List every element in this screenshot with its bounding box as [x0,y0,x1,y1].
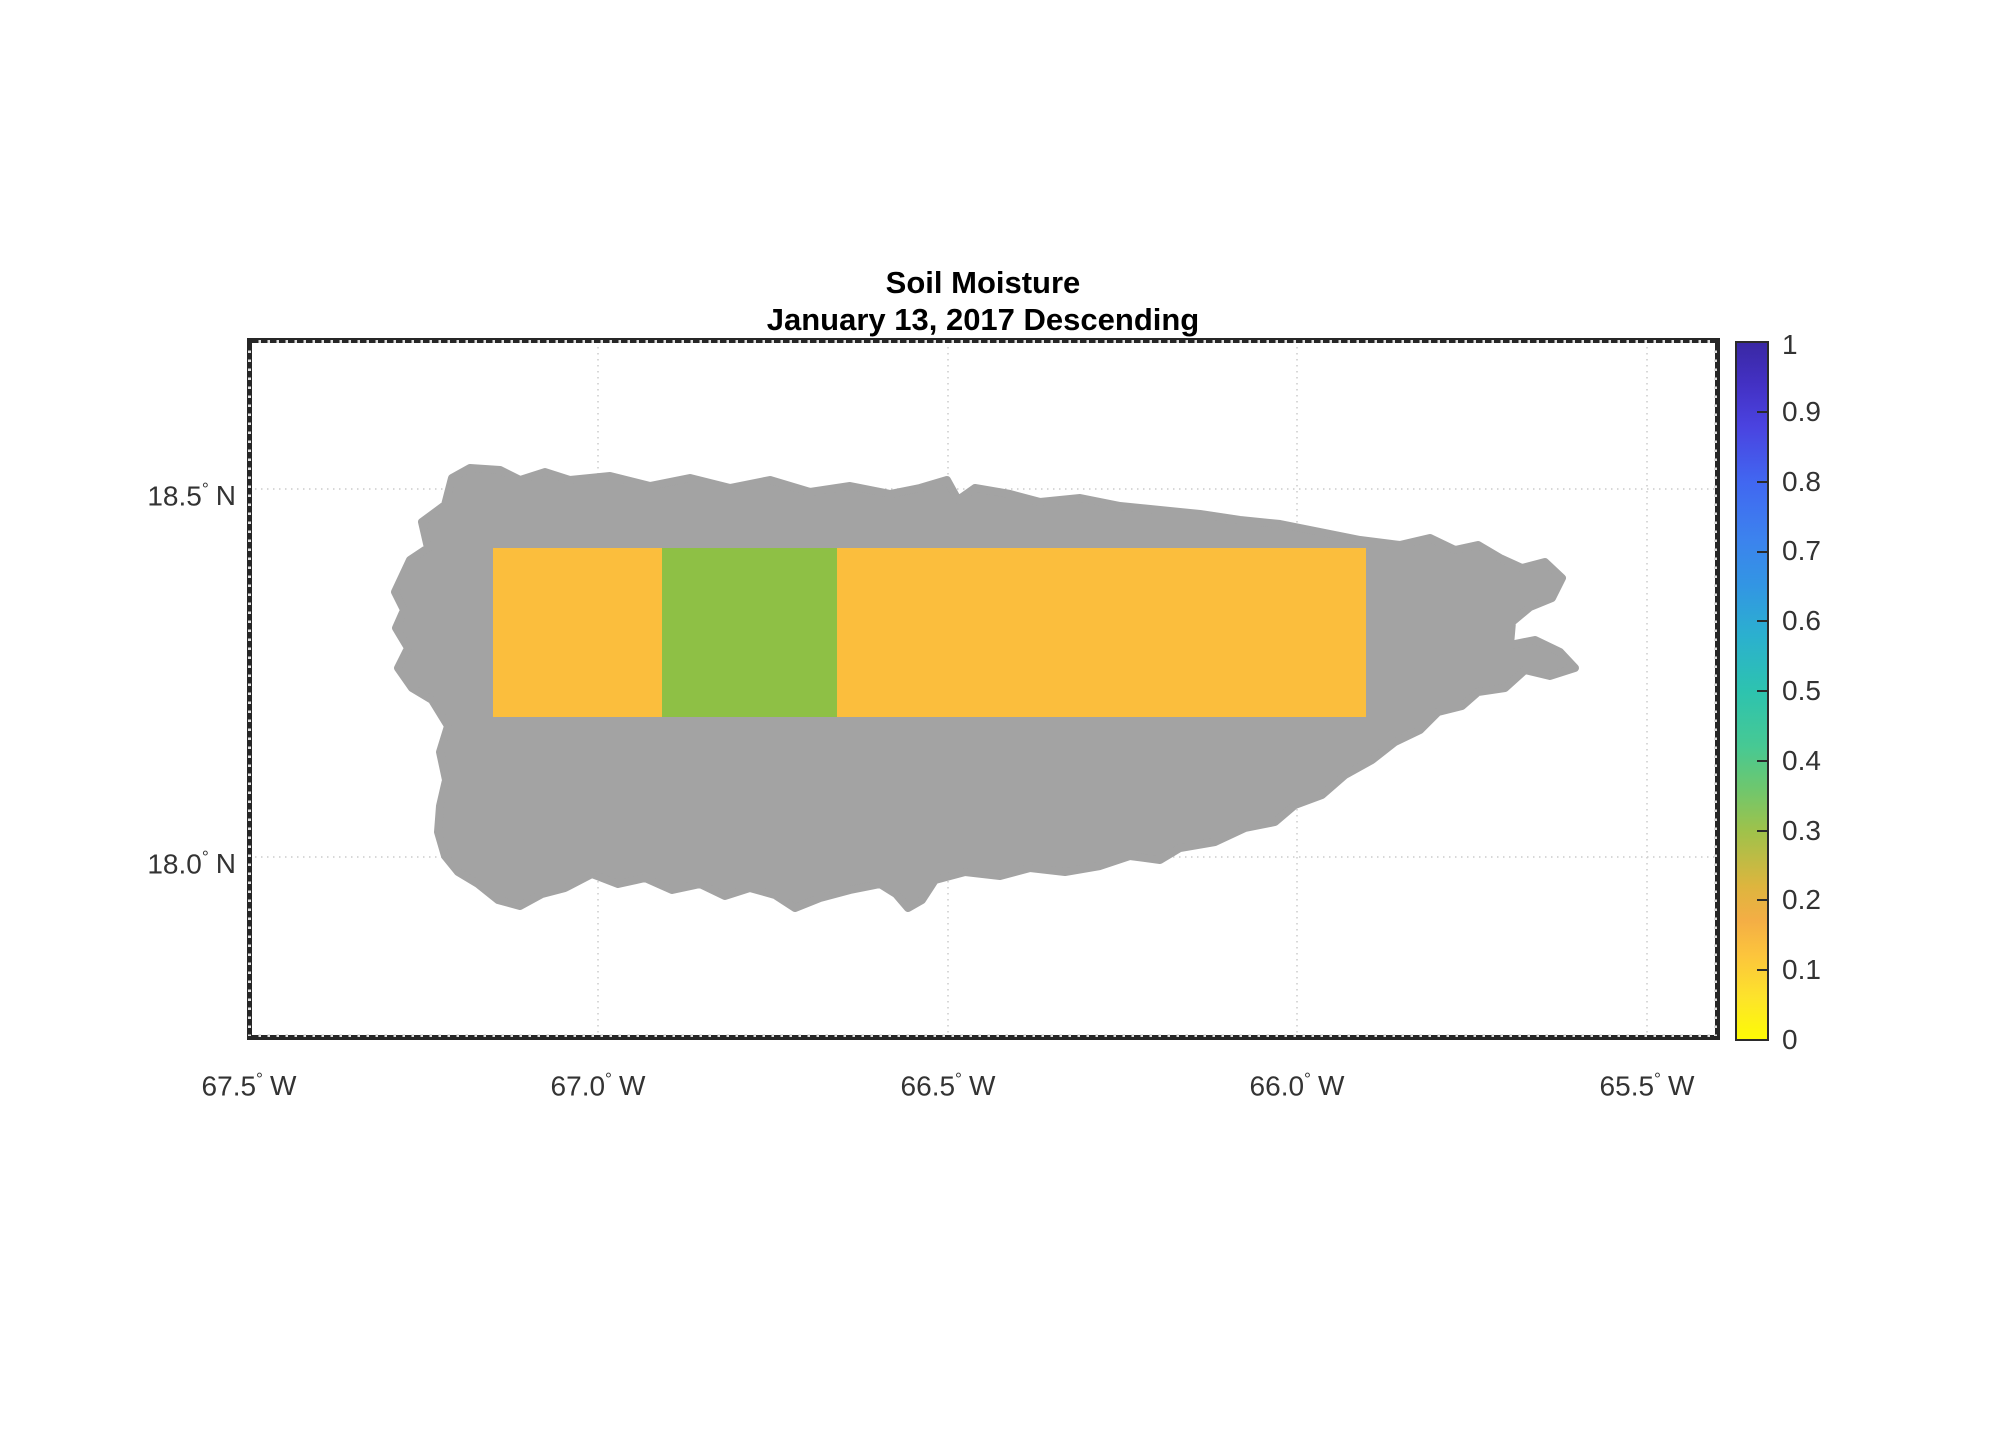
degree-symbol: ° [256,1069,263,1089]
colorbar-tick-0-7 [1757,551,1767,553]
x-tick-value: 66.5 [901,1070,956,1101]
colorbar-label-0-1: 0.1 [1782,955,1872,985]
colorbar-label-0-9: 0.9 [1782,397,1872,427]
degree-symbol: ° [202,479,209,499]
hemisphere-letter: W [969,1070,995,1101]
degree-symbol: ° [1304,1069,1311,1089]
y-tick-18-5-n: 18.5°N [96,474,236,511]
chart-title: Soil Moisture January 13, 2017 Descendin… [483,264,1483,338]
x-tick-value: 67.0 [551,1070,606,1101]
colorbar-label-0: 0 [1782,1025,1872,1055]
colorbar-tick-0-5 [1757,690,1767,692]
y-tick-18-0-n: 18.0°N [96,842,236,879]
x-tick-66-0-w: 66.0°W [1217,1064,1377,1101]
hemisphere-letter: N [216,848,236,879]
hemisphere-letter: W [270,1070,296,1101]
colorbar [1735,341,1769,1041]
x-tick-value: 65.5 [1600,1070,1655,1101]
x-tick-value: 67.5 [202,1070,257,1101]
degree-symbol: ° [202,847,209,867]
colorbar-label-0-8: 0.8 [1782,467,1872,497]
colorbar-tick-0-1 [1757,969,1767,971]
y-tick-value: 18.0 [147,848,202,879]
hemisphere-letter: W [1668,1070,1694,1101]
chart-title-line2: January 13, 2017 Descending [483,301,1483,338]
colorbar-label-0-4: 0.4 [1782,746,1872,776]
y-tick-value: 18.5 [147,480,202,511]
colorbar-tick-0-6 [1757,620,1767,622]
x-tick-67-5-w: 67.5°W [169,1064,329,1101]
colorbar-label-0-5: 0.5 [1782,676,1872,706]
x-tick-67-0-w: 67.0°W [518,1064,678,1101]
colorbar-label-0-6: 0.6 [1782,606,1872,636]
colorbar-tick-0-3 [1757,830,1767,832]
chart-title-line1: Soil Moisture [483,264,1483,301]
plot-frame [247,338,1720,1040]
degree-symbol: ° [955,1069,962,1089]
hemisphere-letter: W [619,1070,645,1101]
hemisphere-letter: N [216,480,236,511]
colorbar-label-0-2: 0.2 [1782,885,1872,915]
degree-symbol: ° [1654,1069,1661,1089]
colorbar-label-1: 1 [1782,330,1872,360]
degree-symbol: ° [605,1069,612,1089]
x-tick-65-5-w: 65.5°W [1567,1064,1727,1101]
hemisphere-letter: W [1318,1070,1344,1101]
x-tick-value: 66.0 [1250,1070,1305,1101]
colorbar-label-0-3: 0.3 [1782,816,1872,846]
x-tick-66-5-w: 66.5°W [868,1064,1028,1101]
colorbar-tick-0-9 [1757,411,1767,413]
colorbar-tick-0-2 [1757,899,1767,901]
colorbar-label-0-7: 0.7 [1782,536,1872,566]
colorbar-tick-0-4 [1757,760,1767,762]
colorbar-tick-0-8 [1757,481,1767,483]
